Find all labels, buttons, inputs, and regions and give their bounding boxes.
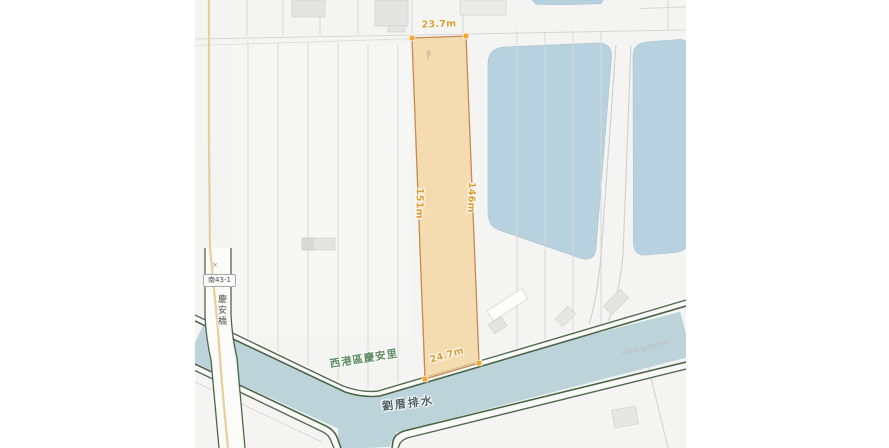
building (375, 0, 408, 26)
vertex-handle[interactable] (422, 376, 428, 382)
pond (633, 39, 686, 255)
building (388, 26, 405, 32)
vertex-handle[interactable] (409, 35, 415, 41)
parcel-number-label: 光3 (425, 50, 430, 61)
bridge-label: 慶安橋 (216, 294, 225, 327)
building (612, 406, 639, 428)
building (292, 0, 325, 17)
building (302, 239, 313, 250)
pond (488, 43, 612, 259)
map-graphics (195, 0, 686, 448)
map-canvas[interactable]: 23.7m 151m 146m 24.7m 西港區慶安里 劉厝排水 南43-1 … (195, 0, 686, 448)
building (460, 0, 506, 15)
pond-sliver (532, 0, 603, 5)
vertex-handle[interactable] (476, 360, 482, 366)
measurement-left-label: 151m (414, 188, 424, 219)
screenshot: 23.7m 151m 146m 24.7m 西港區慶安里 劉厝排水 南43-1 … (0, 0, 889, 448)
cross-mark: × (212, 262, 218, 269)
field-area (232, 46, 410, 336)
measurement-top-label: 23.7m (421, 19, 456, 30)
vertex-handle[interactable] (463, 33, 469, 39)
road-number-badge: 南43-1 (203, 274, 236, 287)
measurement-right-label: 146m (466, 182, 476, 213)
